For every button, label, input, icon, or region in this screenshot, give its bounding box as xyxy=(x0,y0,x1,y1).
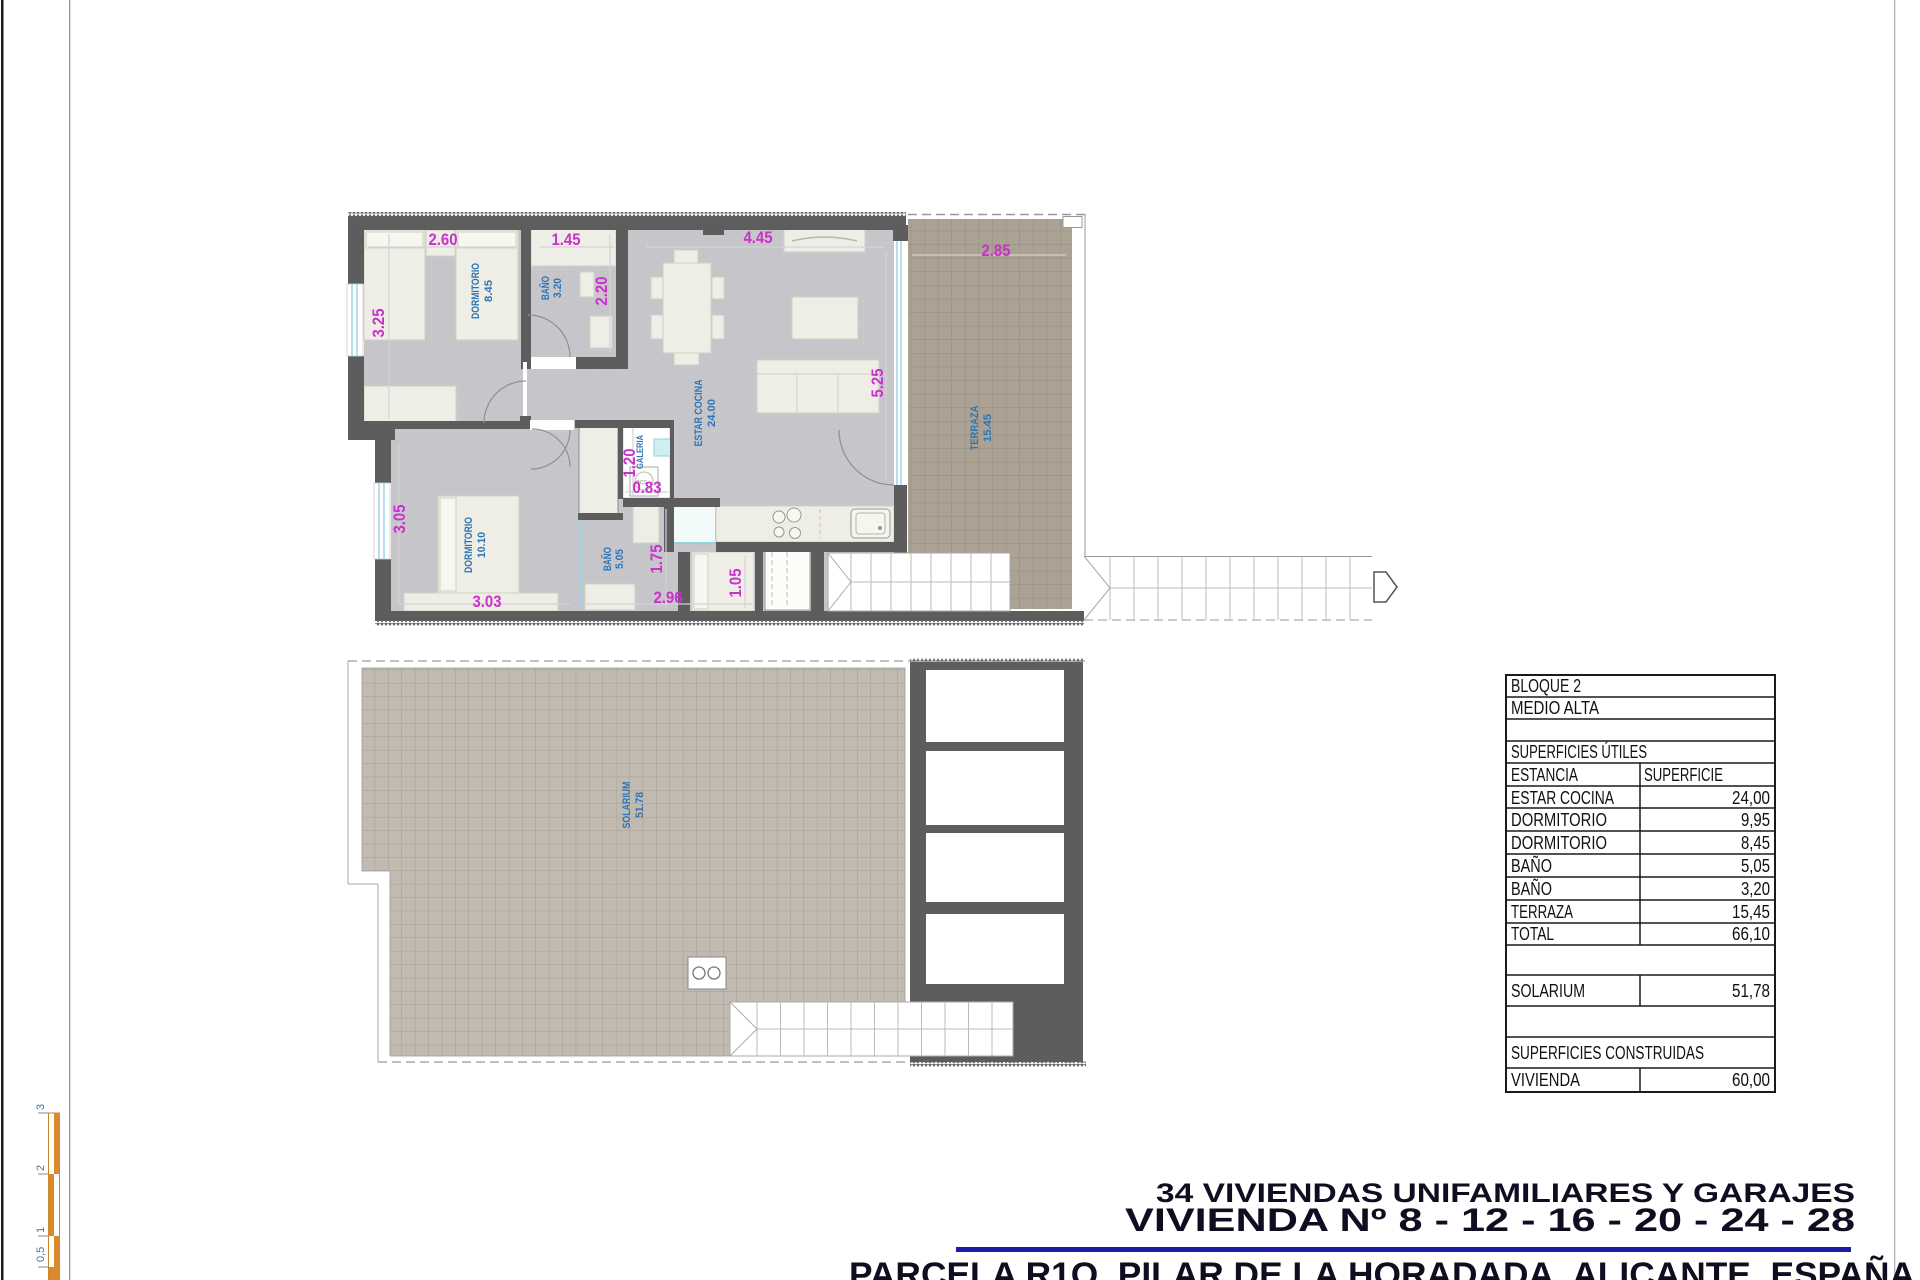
svg-text:MEDIO ALTA: MEDIO ALTA xyxy=(1511,698,1599,718)
svg-text:DORMITORIO: DORMITORIO xyxy=(1511,810,1607,830)
svg-text:10.10: 10.10 xyxy=(476,532,488,558)
svg-text:TERRAZA: TERRAZA xyxy=(969,405,981,450)
svg-text:9,95: 9,95 xyxy=(1741,810,1770,830)
svg-text:ESTANCIA: ESTANCIA xyxy=(1511,765,1578,785)
svg-text:PARCELA R1O, PILAR DE LA HORAD: PARCELA R1O, PILAR DE LA HORADADA, ALICA… xyxy=(849,1256,1915,1280)
svg-text:2.96: 2.96 xyxy=(654,589,683,607)
svg-text:51.78: 51.78 xyxy=(634,792,646,818)
svg-text:0,5: 0,5 xyxy=(35,1247,47,1262)
svg-text:SUPERFICIES ÚTILES: SUPERFICIES ÚTILES xyxy=(1511,741,1647,762)
svg-text:SUPERFICIES CONSTRUIDAS: SUPERFICIES CONSTRUIDAS xyxy=(1511,1043,1704,1063)
svg-text:VIVIENDA: VIVIENDA xyxy=(1511,1070,1580,1090)
svg-text:3,20: 3,20 xyxy=(1741,879,1770,899)
svg-text:3.20: 3.20 xyxy=(552,278,564,298)
svg-text:4.45: 4.45 xyxy=(744,229,773,247)
svg-text:BAÑO: BAÑO xyxy=(601,547,614,571)
svg-text:1.05: 1.05 xyxy=(727,569,745,598)
svg-text:SOLARIUM: SOLARIUM xyxy=(621,782,633,829)
svg-text:24,00: 24,00 xyxy=(1732,788,1770,808)
svg-text:DORMITORIO: DORMITORIO xyxy=(470,263,482,319)
svg-text:SUPERFICIE: SUPERFICIE xyxy=(1644,765,1723,785)
svg-text:1.75: 1.75 xyxy=(648,545,666,574)
svg-text:VIVIENDA Nº 8 - 12 - 16 - 20 -: VIVIENDA Nº 8 - 12 - 16 - 20 - 24 - 28 xyxy=(1125,1202,1855,1238)
svg-text:2.85: 2.85 xyxy=(982,242,1011,260)
svg-text:2.20: 2.20 xyxy=(593,277,611,306)
svg-text:51,78: 51,78 xyxy=(1732,981,1770,1001)
svg-text:60,00: 60,00 xyxy=(1732,1070,1770,1090)
svg-text:DORMITORIO: DORMITORIO xyxy=(463,517,475,573)
svg-text:0.83: 0.83 xyxy=(633,479,662,497)
svg-text:ESTAR COCINA: ESTAR COCINA xyxy=(693,379,705,446)
svg-text:BAÑO: BAÑO xyxy=(1511,878,1552,899)
svg-text:3: 3 xyxy=(35,1104,47,1110)
svg-text:BLOQUE 2: BLOQUE 2 xyxy=(1511,676,1581,696)
svg-text:5.25: 5.25 xyxy=(869,369,887,398)
svg-text:2: 2 xyxy=(35,1165,47,1171)
svg-text:1: 1 xyxy=(35,1227,47,1233)
svg-text:ESTAR COCINA: ESTAR COCINA xyxy=(1511,788,1614,808)
svg-text:DORMITORIO: DORMITORIO xyxy=(1511,833,1607,853)
svg-text:66,10: 66,10 xyxy=(1732,924,1770,944)
svg-text:1.45: 1.45 xyxy=(552,231,581,249)
svg-text:TOTAL: TOTAL xyxy=(1511,924,1554,944)
svg-text:2.60: 2.60 xyxy=(429,231,458,249)
svg-text:TERRAZA: TERRAZA xyxy=(1511,902,1573,922)
svg-text:3.05: 3.05 xyxy=(391,505,409,534)
svg-text:5.05: 5.05 xyxy=(614,549,626,569)
svg-text:5,05: 5,05 xyxy=(1741,856,1770,876)
svg-text:24.00: 24.00 xyxy=(706,399,718,427)
svg-text:BAÑO: BAÑO xyxy=(539,276,552,300)
svg-text:3.03: 3.03 xyxy=(473,593,502,611)
svg-text:8.45: 8.45 xyxy=(483,280,495,302)
svg-text:3.25: 3.25 xyxy=(370,309,388,338)
svg-text:15.45: 15.45 xyxy=(982,414,994,442)
svg-text:8,45: 8,45 xyxy=(1741,833,1770,853)
svg-text:SOLARIUM: SOLARIUM xyxy=(1511,981,1585,1001)
svg-text:GALERIA: GALERIA xyxy=(635,435,645,469)
svg-text:BAÑO: BAÑO xyxy=(1511,855,1552,876)
svg-text:15,45: 15,45 xyxy=(1732,902,1770,922)
